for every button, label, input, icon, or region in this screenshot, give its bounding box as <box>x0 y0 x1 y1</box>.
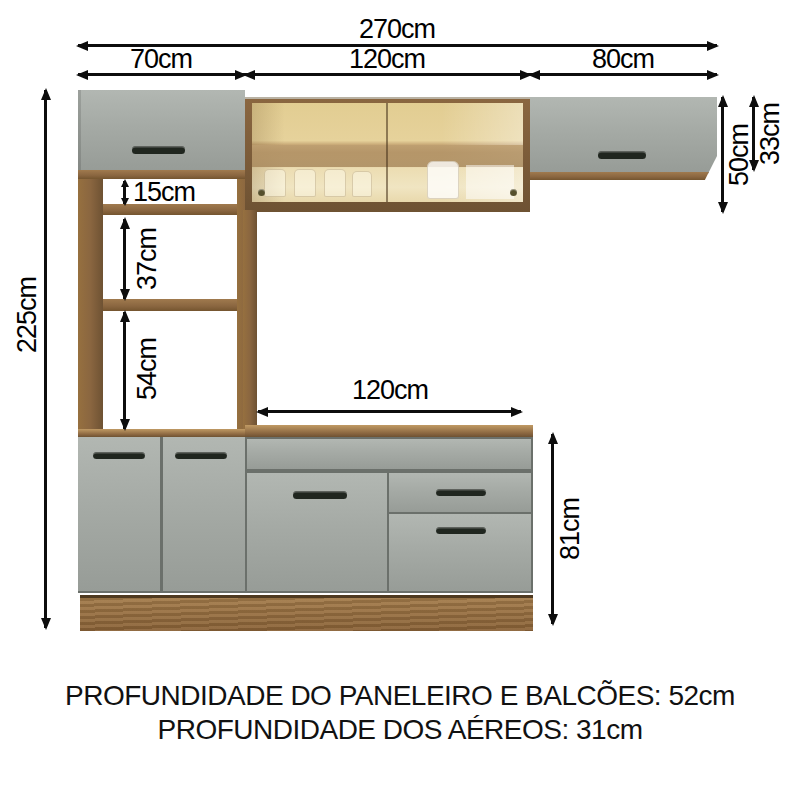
dim-label-counter-width: 120cm <box>352 377 428 404</box>
base-left-door-2 <box>163 437 245 591</box>
door-handle <box>293 491 347 499</box>
base-left-cabinet <box>78 437 245 593</box>
jar <box>352 171 372 197</box>
dim-label-total-width: 270cm <box>359 16 435 43</box>
dim-arrow-total-height <box>44 90 47 628</box>
dim-label-shelf-gap-3: 54cm <box>134 338 161 400</box>
tall-cabinet-top-door <box>78 90 245 172</box>
door-handle <box>598 151 646 159</box>
jar <box>324 169 346 197</box>
dim-label-right-width: 80cm <box>592 46 654 73</box>
base-right-cabinet <box>245 437 533 593</box>
dim-label-shelf-gap-2: 37cm <box>134 228 161 290</box>
dim-label-left-width: 70cm <box>130 46 192 73</box>
glass-door-divider <box>386 103 388 202</box>
door-handle <box>93 452 145 459</box>
canister <box>427 161 459 199</box>
door-handle <box>175 452 227 459</box>
glass-reflection <box>466 165 514 199</box>
glass-doors <box>252 103 523 202</box>
dim-arrow-counter-width <box>258 410 521 413</box>
glass-aerial-cabinet <box>245 97 530 212</box>
tall-cabinet-left-post <box>78 179 103 429</box>
dim-arrow-shelf-gap-3 <box>123 312 126 429</box>
kitchen-cabinet-dimension-diagram: 270cm 70cm 120cm 80cm 225cm 15cm 37cm 54… <box>0 0 800 800</box>
drawer-handle <box>436 527 486 534</box>
glass-knob-left <box>258 189 265 196</box>
depth-note-line-2: PROFUNDIDADE DOS AÉREOS: 31cm <box>158 716 643 744</box>
door-handle <box>132 146 185 154</box>
base-drawer-2 <box>389 514 531 591</box>
base-drawer-1 <box>389 473 531 512</box>
plinth <box>80 595 533 631</box>
dim-label-shelf-gap-1: 15cm <box>133 179 195 206</box>
dim-label-base-height: 81cm <box>557 498 584 560</box>
middle-post <box>243 210 257 429</box>
drawer-handle <box>436 489 486 496</box>
base-sink-front-strip <box>247 439 531 469</box>
base-right-door <box>247 473 387 591</box>
dim-label-total-height: 225cm <box>14 277 41 353</box>
dim-label-middle-width: 120cm <box>349 46 425 73</box>
right-aerial-door <box>530 97 717 174</box>
dim-arrow-shelf-gap-2 <box>123 219 126 299</box>
glass-knob-right <box>510 189 517 196</box>
jar <box>264 169 286 197</box>
right-aerial-cabinet <box>530 97 717 180</box>
dim-label-right-aerial-height: 33cm <box>757 103 784 165</box>
dim-arrow-shelf-gap-1 <box>123 181 126 204</box>
jar <box>294 169 316 197</box>
right-aerial-bottom-strip <box>530 172 717 180</box>
depth-note-line-1: PROFUNDIDADE DO PANELEIRO E BALCÕES: 52c… <box>65 682 735 710</box>
dim-label-middle-aerial-height: 50cm <box>726 124 753 186</box>
base-left-door-1 <box>78 437 160 591</box>
